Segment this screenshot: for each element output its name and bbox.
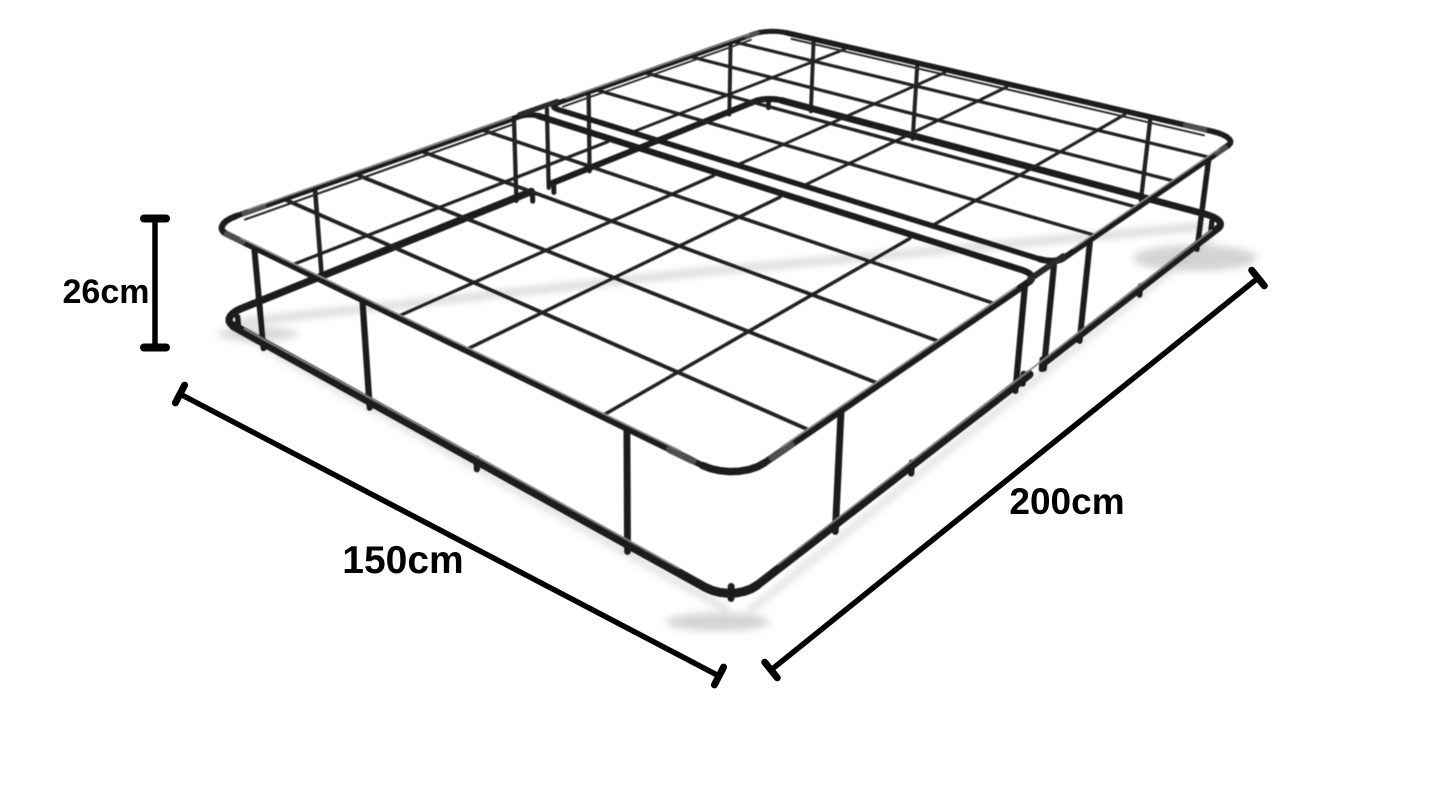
- svg-text:150cm: 150cm: [342, 539, 463, 582]
- svg-text:26cm: 26cm: [63, 273, 150, 311]
- svg-text:200cm: 200cm: [1009, 481, 1124, 522]
